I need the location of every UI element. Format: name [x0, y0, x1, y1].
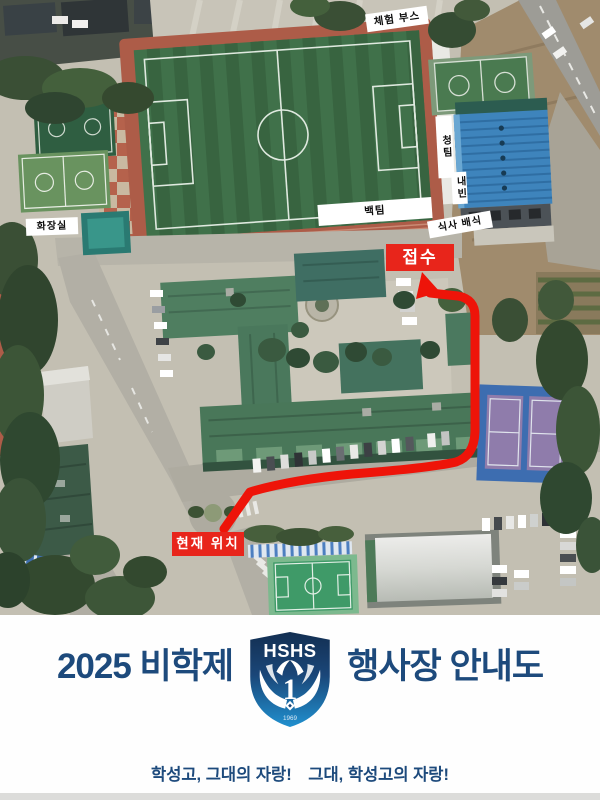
logo-acronym: HSHS: [264, 640, 317, 661]
pool: [81, 211, 131, 255]
label-reception-marker: 접수: [386, 244, 454, 271]
label-restroom: 화장실: [26, 217, 79, 236]
label-current-location-marker: 현재 위치: [172, 532, 244, 556]
school-emblem-logo: HSHS 1 1969: [246, 631, 334, 728]
school-slogan: 학성고, 그대의 자랑! 그대, 학성고의 자랑!: [0, 761, 600, 785]
label-vip-guests: 내빈: [451, 172, 468, 205]
campus-satellite-image: [0, 0, 600, 615]
event-guide-poster: 체험 부스 청팀 내빈 백팀 식사 배식 화장실 접수 현재 위치 2025 비…: [0, 0, 600, 800]
bottom-edge-strip: [0, 793, 600, 800]
title-right-text: 행사장 안내도: [347, 638, 543, 689]
white-roof-building: [365, 530, 502, 609]
title-left-text: 2025 비학제: [57, 638, 233, 689]
label-blue-team: 청팀: [435, 116, 454, 179]
slogan-second-half: 그대, 학성고의 자랑!: [302, 766, 455, 784]
poster-title: 2025 비학제 HSHS: [0, 631, 600, 728]
poster-footer: 2025 비학제 HSHS: [0, 615, 600, 800]
slogan-first-half: 학성고, 그대의 자랑!: [145, 766, 298, 784]
campus-map: 체험 부스 청팀 내빈 백팀 식사 배식 화장실 접수 현재 위치: [0, 0, 600, 615]
logo-year: 1969: [283, 715, 298, 722]
basketball-court-lower: [267, 554, 359, 615]
